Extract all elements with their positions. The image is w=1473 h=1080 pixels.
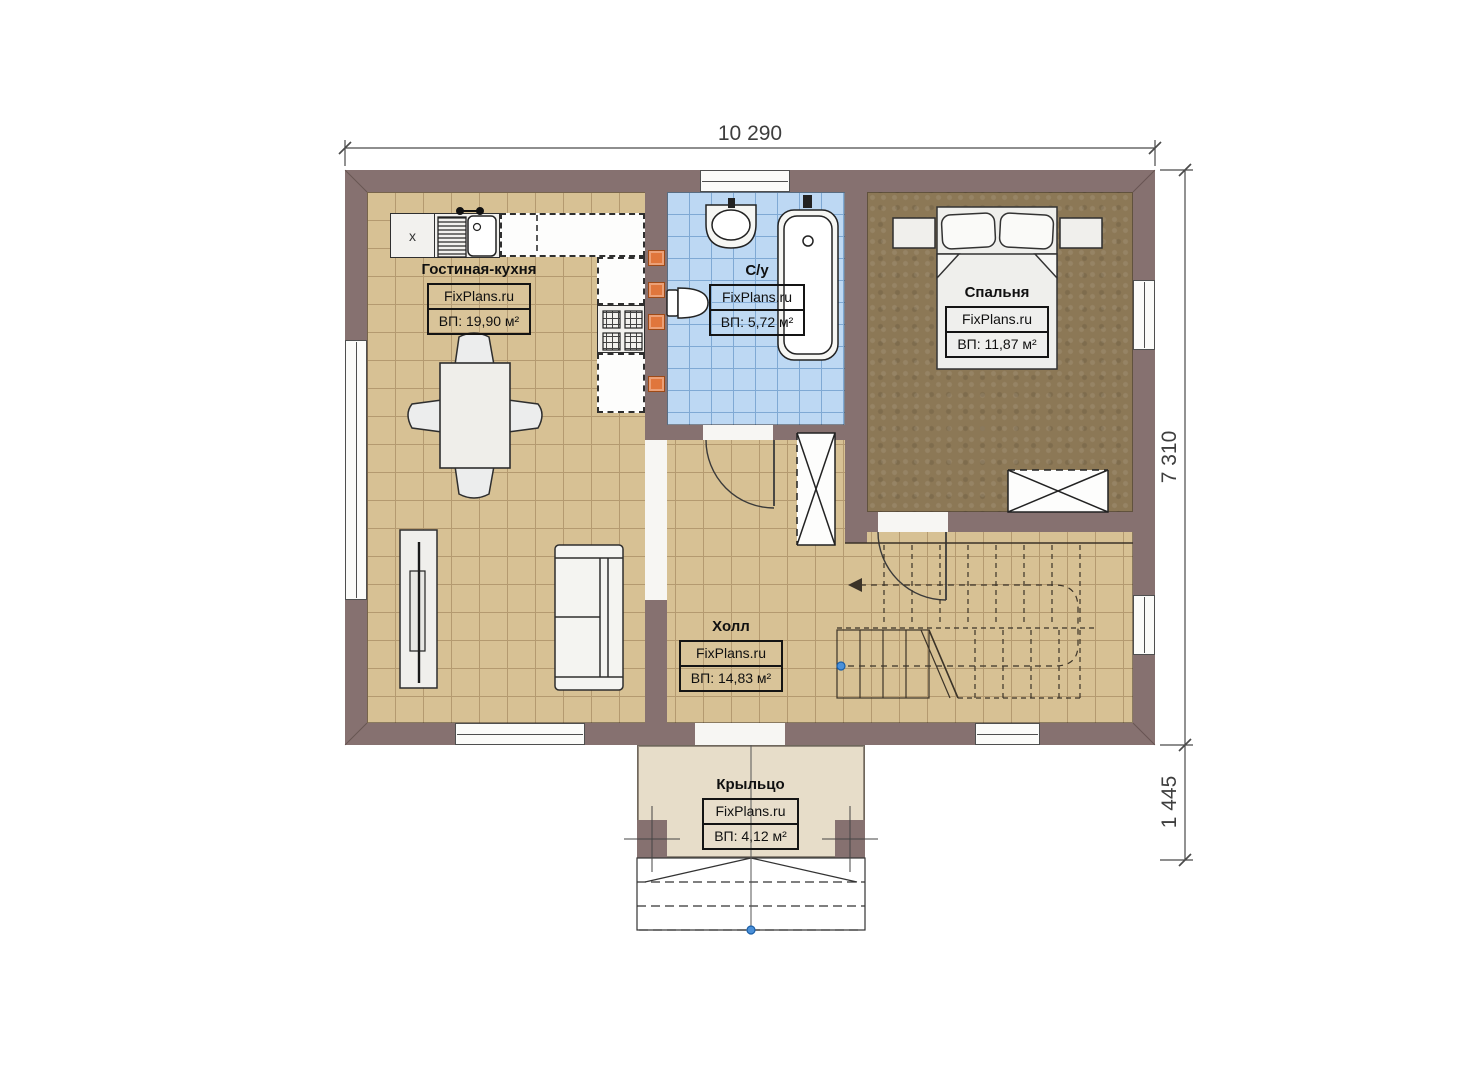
watermark-text: FixPlans.ru bbox=[711, 286, 804, 311]
area-text-bedroom: ВП: 11,87 м² bbox=[947, 333, 1046, 356]
room-label-bedroom: Спальня FixPlans.ru ВП: 11,87 м² bbox=[933, 284, 1061, 358]
kitchen-counter: x bbox=[390, 213, 500, 258]
watermark-text: FixPlans.ru bbox=[429, 285, 529, 310]
wall-outer-right bbox=[1133, 170, 1155, 745]
kitchen-column-upper-dashed bbox=[597, 257, 645, 305]
room-name-living: Гостиная-кухня bbox=[422, 261, 537, 280]
vent-block-4 bbox=[648, 376, 665, 392]
window-hall-bottom bbox=[975, 723, 1040, 745]
window-living-bottom bbox=[455, 723, 585, 745]
opening-living-hall bbox=[645, 440, 667, 600]
room-name-porch: Крыльцо bbox=[716, 776, 784, 795]
area-text-porch: ВП: 4,12 м² bbox=[704, 825, 797, 848]
room-name-hall: Холл bbox=[712, 618, 750, 637]
kitchen-cabinet-below-stove bbox=[597, 353, 645, 413]
room-label-living: Гостиная-кухня FixPlans.ru ВП: 19,90 м² bbox=[404, 261, 554, 335]
area-box-bathroom: FixPlans.ru ВП: 5,72 м² bbox=[709, 284, 806, 336]
doorway-entrance bbox=[695, 723, 785, 745]
porch-pillar-right bbox=[835, 820, 865, 858]
kitchen-cabinet-x: x bbox=[391, 214, 435, 257]
wall-bathroom-bedroom bbox=[845, 192, 867, 543]
kitchen-stove bbox=[597, 305, 645, 353]
window-stairs-right bbox=[1133, 595, 1155, 655]
watermark-text: FixPlans.ru bbox=[947, 308, 1046, 333]
area-box-hall: FixPlans.ru ВП: 14,83 м² bbox=[679, 640, 783, 692]
room-label-porch: Крыльцо FixPlans.ru ВП: 4,12 м² bbox=[693, 776, 808, 850]
dimension-porch-label: 1 445 bbox=[1157, 752, 1183, 852]
window-bedroom-right bbox=[1133, 280, 1155, 350]
dimension-top-label: 10 290 bbox=[690, 121, 810, 147]
watermark-text: FixPlans.ru bbox=[704, 800, 797, 825]
room-name-bedroom: Спальня bbox=[965, 284, 1030, 303]
wall-living-hall-stub bbox=[645, 600, 667, 723]
area-text-living: ВП: 19,90 м² bbox=[429, 310, 529, 333]
area-text-hall: ВП: 14,83 м² bbox=[681, 667, 781, 690]
room-label-hall: Холл FixPlans.ru ВП: 14,83 м² bbox=[670, 618, 792, 692]
doorway-bathroom bbox=[703, 425, 773, 440]
room-label-bathroom: С/у FixPlans.ru ВП: 5,72 м² bbox=[705, 262, 809, 336]
window-bathroom-top bbox=[700, 170, 790, 192]
area-box-bedroom: FixPlans.ru ВП: 11,87 м² bbox=[945, 306, 1048, 358]
window-living-left bbox=[345, 340, 367, 600]
porch-pillar-left bbox=[637, 820, 667, 858]
area-box-living: FixPlans.ru ВП: 19,90 м² bbox=[427, 283, 531, 335]
dimension-right-label: 7 310 bbox=[1157, 407, 1183, 507]
porch-axis-dot bbox=[747, 926, 755, 934]
doorway-bedroom bbox=[878, 512, 948, 532]
fridge-marker-label: x bbox=[409, 228, 416, 244]
area-text-bathroom: ВП: 5,72 м² bbox=[711, 311, 804, 334]
watermark-text: FixPlans.ru bbox=[681, 642, 781, 667]
vent-block-1 bbox=[648, 250, 665, 266]
room-name-bathroom: С/у bbox=[745, 262, 768, 281]
vent-block-2 bbox=[648, 282, 665, 298]
kitchen-upper-cabinets-dashed bbox=[500, 213, 645, 257]
floor-plan-canvas: x bbox=[0, 0, 1473, 1080]
vent-block-3 bbox=[648, 314, 665, 330]
area-box-porch: FixPlans.ru ВП: 4,12 м² bbox=[702, 798, 799, 850]
